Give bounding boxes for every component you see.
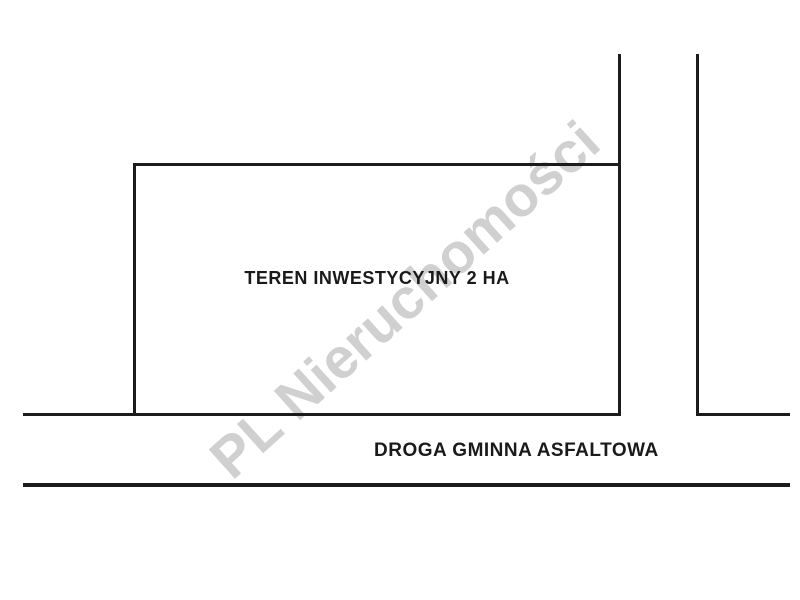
- main-road-top-edge-left-segment: [23, 413, 621, 416]
- side-road-right-edge-line: [696, 54, 699, 416]
- road-name-label: DROGA GMINNA ASFALTOWA: [374, 440, 659, 462]
- plot-area-label: TEREN INWESTYCYJNY 2 HA: [133, 268, 621, 289]
- main-road-top-edge-right-segment: [696, 413, 790, 416]
- main-road-bottom-edge-line: [23, 483, 790, 487]
- investment-plot-outline: [133, 163, 621, 416]
- land-plot-sketch: PL Nieruchomości TEREN INWESTYCYJNY 2 HA…: [0, 0, 800, 600]
